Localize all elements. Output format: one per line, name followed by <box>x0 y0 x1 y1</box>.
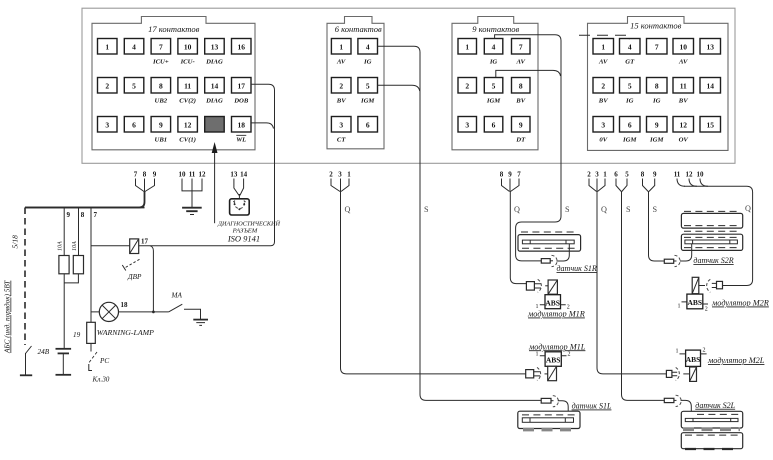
svg-text:IGM: IGM <box>486 98 501 105</box>
svg-text:2: 2 <box>465 82 469 91</box>
svg-text:13: 13 <box>211 43 219 52</box>
svg-text:8: 8 <box>500 171 504 179</box>
svg-text:AV: AV <box>516 59 526 66</box>
svg-text:OV: OV <box>679 137 689 144</box>
svg-text:8: 8 <box>655 82 659 91</box>
svg-text:ABS: ABS <box>546 356 561 365</box>
svg-text:6 контактов: 6 контактов <box>335 24 382 34</box>
svg-text:3: 3 <box>338 171 342 179</box>
svg-text:17: 17 <box>141 238 149 246</box>
svg-text:S: S <box>565 205 570 214</box>
svg-text:5: 5 <box>132 82 136 91</box>
svg-text:CV(1): CV(1) <box>179 137 196 144</box>
svg-text:BV: BV <box>678 98 688 105</box>
svg-text:1: 1 <box>347 171 351 179</box>
svg-text:5: 5 <box>628 82 632 91</box>
svg-text:S: S <box>653 205 658 214</box>
svg-text:8: 8 <box>81 211 85 219</box>
svg-text:DT: DT <box>515 137 526 144</box>
svg-text:11: 11 <box>189 171 196 179</box>
svg-text:15: 15 <box>707 121 715 130</box>
svg-text:5: 5 <box>366 82 370 91</box>
svg-text:18: 18 <box>121 301 129 309</box>
svg-text:IGM: IGM <box>622 137 637 144</box>
svg-text:1: 1 <box>678 304 681 310</box>
svg-text:АБС (инд. порядок) 5ВТ: АБС (инд. порядок) 5ВТ <box>4 280 12 354</box>
svg-text:2: 2 <box>105 82 109 91</box>
svg-text:CV(2): CV(2) <box>179 98 196 105</box>
svg-text:ДВР: ДВР <box>127 273 142 281</box>
svg-text:6: 6 <box>366 121 370 130</box>
svg-text:S: S <box>424 205 429 214</box>
svg-text:Q: Q <box>514 205 520 214</box>
svg-text:модулятор M1L: модулятор M1L <box>528 342 586 351</box>
svg-text:6: 6 <box>492 121 496 130</box>
svg-text:ДИАГНОСТИЧЕСКИЙ: ДИАГНОСТИЧЕСКИЙ <box>217 220 280 228</box>
svg-text:UB2: UB2 <box>155 98 168 105</box>
svg-text:10А: 10А <box>72 241 78 251</box>
svg-text:9 контактов: 9 контактов <box>472 24 519 34</box>
svg-text:DIAG: DIAG <box>205 59 223 66</box>
svg-text:1: 1 <box>603 171 607 179</box>
svg-text:7: 7 <box>159 43 163 52</box>
svg-text:11: 11 <box>674 171 681 179</box>
svg-text:1: 1 <box>339 43 343 52</box>
svg-text:13: 13 <box>707 43 715 52</box>
svg-text:10: 10 <box>680 43 688 52</box>
svg-text:8: 8 <box>519 82 523 91</box>
svg-text:19: 19 <box>73 331 81 339</box>
svg-text:4: 4 <box>492 43 496 52</box>
svg-text:ICU-: ICU- <box>180 59 195 66</box>
svg-text:датчик S1L: датчик S1L <box>572 402 612 411</box>
svg-text:18: 18 <box>238 121 246 130</box>
svg-text:1: 1 <box>676 349 679 355</box>
svg-text:13: 13 <box>230 171 238 179</box>
svg-text:6: 6 <box>628 121 632 130</box>
svg-text:9: 9 <box>519 121 523 130</box>
svg-text:WL: WL <box>236 137 246 144</box>
svg-text:2: 2 <box>587 171 591 179</box>
svg-text:7: 7 <box>517 171 521 179</box>
svg-text:12: 12 <box>199 171 207 179</box>
svg-text:2: 2 <box>705 307 708 313</box>
svg-text:8: 8 <box>159 82 163 91</box>
svg-text:5/18: 5/18 <box>11 235 20 249</box>
svg-text:6: 6 <box>132 121 136 130</box>
svg-text:1: 1 <box>536 352 539 358</box>
svg-text:8: 8 <box>143 171 147 179</box>
svg-text:2: 2 <box>703 348 706 354</box>
svg-text:7: 7 <box>519 43 523 52</box>
svg-text:7: 7 <box>655 43 659 52</box>
svg-text:2: 2 <box>329 171 333 179</box>
svg-text:10: 10 <box>184 43 192 52</box>
svg-text:24В: 24В <box>38 348 50 356</box>
svg-text:9: 9 <box>67 211 71 219</box>
svg-text:1: 1 <box>465 43 469 52</box>
svg-text:ABS: ABS <box>688 298 703 307</box>
svg-text:12: 12 <box>686 171 694 179</box>
svg-text:IGM: IGM <box>649 137 664 144</box>
svg-text:10А: 10А <box>58 241 64 251</box>
svg-text:8: 8 <box>641 171 645 179</box>
svg-text:датчик S2L: датчик S2L <box>695 401 735 410</box>
svg-text:IG: IG <box>652 98 661 105</box>
svg-text:9: 9 <box>508 171 512 179</box>
svg-text:11: 11 <box>680 82 687 91</box>
svg-text:2: 2 <box>339 82 343 91</box>
svg-text:5: 5 <box>492 82 496 91</box>
svg-text:10: 10 <box>697 171 705 179</box>
svg-text:5: 5 <box>625 171 629 179</box>
svg-text:ABS: ABS <box>686 355 701 364</box>
svg-text:РС: РС <box>99 357 109 365</box>
svg-text:17: 17 <box>238 82 246 91</box>
svg-text:1: 1 <box>105 43 109 52</box>
svg-text:0V: 0V <box>599 137 607 144</box>
svg-text:BV: BV <box>598 98 608 105</box>
svg-text:12: 12 <box>680 121 688 130</box>
svg-text:3: 3 <box>465 121 469 130</box>
svg-text:AV: AV <box>678 59 688 66</box>
svg-text:2: 2 <box>568 352 571 358</box>
svg-text:DIAG: DIAG <box>205 98 223 105</box>
svg-text:MA: MA <box>171 292 183 300</box>
svg-text:4: 4 <box>628 43 632 52</box>
svg-text:10: 10 <box>179 171 187 179</box>
svg-text:WARNING-LAMP: WARNING-LAMP <box>97 328 154 337</box>
svg-text:датчик S2R: датчик S2R <box>693 256 733 265</box>
svg-text:4: 4 <box>366 43 370 52</box>
svg-text:6: 6 <box>614 171 618 179</box>
svg-text:14: 14 <box>707 82 715 91</box>
svg-text:12: 12 <box>184 121 192 130</box>
svg-text:AV: AV <box>598 59 608 66</box>
svg-text:BV: BV <box>515 98 525 105</box>
svg-text:датчик S1R: датчик S1R <box>557 264 597 273</box>
svg-text:Q: Q <box>745 204 751 213</box>
svg-text:16: 16 <box>238 43 246 52</box>
svg-text:17 контактов: 17 контактов <box>148 24 199 34</box>
svg-text:IG: IG <box>625 98 634 105</box>
svg-text:S: S <box>626 205 631 214</box>
svg-text:ISO 9141: ISO 9141 <box>227 233 260 243</box>
svg-text:Q: Q <box>345 205 351 214</box>
svg-text:AV: AV <box>336 59 346 66</box>
svg-text:IG: IG <box>363 59 372 66</box>
svg-text:UB1: UB1 <box>155 137 168 144</box>
svg-text:9: 9 <box>153 171 157 179</box>
svg-text:BV: BV <box>336 98 346 105</box>
svg-text:14: 14 <box>240 171 248 179</box>
svg-text:GT: GT <box>625 59 635 66</box>
svg-text:CT: CT <box>337 137 346 144</box>
svg-text:IGM: IGM <box>360 98 375 105</box>
svg-text:модулятор M1R: модулятор M1R <box>527 310 585 319</box>
svg-text:3: 3 <box>595 171 599 179</box>
svg-text:3: 3 <box>601 121 605 130</box>
svg-text:11: 11 <box>184 82 191 91</box>
svg-text:15 контактов: 15 контактов <box>630 21 681 31</box>
svg-text:Q: Q <box>601 205 607 214</box>
svg-text:14: 14 <box>211 82 219 91</box>
svg-text:3: 3 <box>105 121 109 130</box>
svg-text:DOB: DOB <box>233 98 249 105</box>
svg-text:IG: IG <box>489 59 498 66</box>
svg-text:2: 2 <box>601 82 605 91</box>
svg-text:7: 7 <box>94 211 98 219</box>
svg-text:9: 9 <box>159 121 163 130</box>
svg-text:1: 1 <box>601 43 605 52</box>
svg-text:ICU+: ICU+ <box>152 59 169 66</box>
svg-text:4: 4 <box>132 43 136 52</box>
svg-text:9: 9 <box>655 121 659 130</box>
svg-text:7: 7 <box>134 171 138 179</box>
svg-text:3: 3 <box>339 121 343 130</box>
svg-text:ABS: ABS <box>545 298 560 307</box>
svg-text:Кл.30: Кл.30 <box>92 376 110 384</box>
svg-text:модулятор M2R: модулятор M2R <box>711 299 769 308</box>
svg-text:модулятор M2L: модулятор M2L <box>707 356 765 365</box>
svg-text:9: 9 <box>653 171 657 179</box>
